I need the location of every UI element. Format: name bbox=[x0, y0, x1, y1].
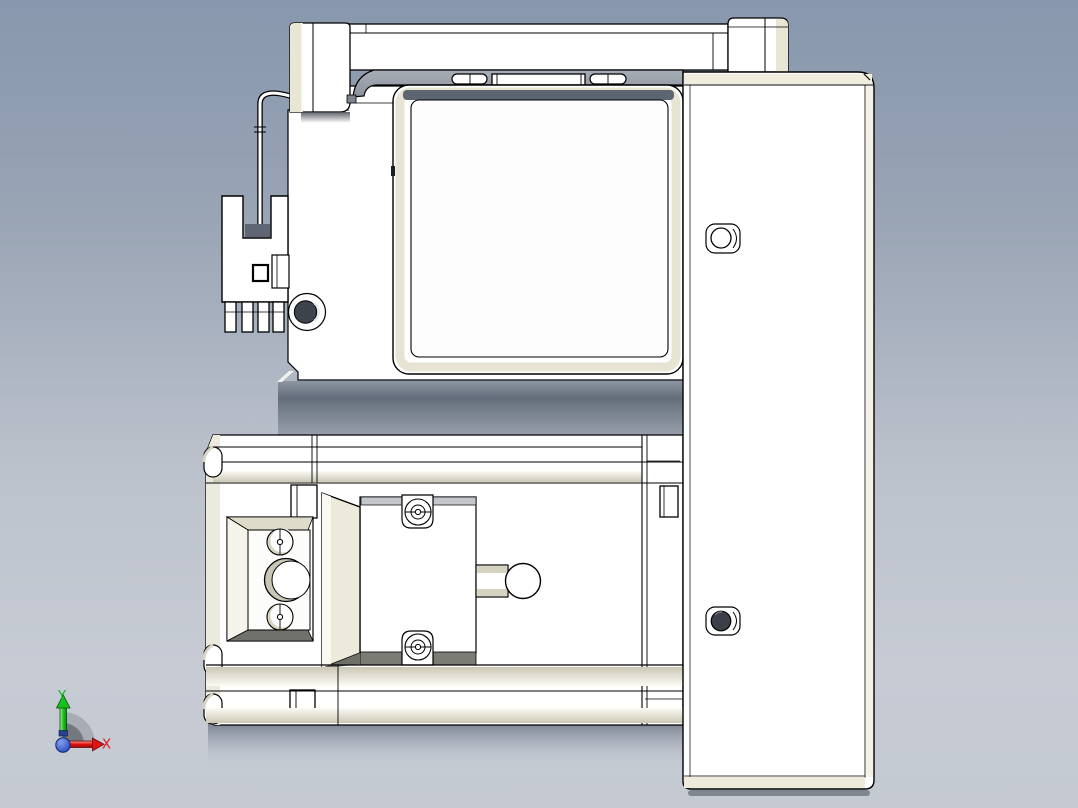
mounting-plate-face bbox=[683, 72, 874, 789]
flange-slot-center bbox=[492, 74, 585, 85]
right-mount-post bbox=[728, 18, 788, 72]
cover-panel bbox=[391, 85, 683, 374]
plate-hole-top bbox=[706, 224, 740, 253]
left-mount-post bbox=[290, 23, 350, 123]
cad-preview-window: Y X bbox=[0, 0, 1078, 808]
cover-panel-inset bbox=[411, 100, 668, 357]
flange-slot-left bbox=[452, 74, 487, 84]
motor-end-recess bbox=[227, 517, 313, 641]
model-viewport[interactable]: Y X bbox=[0, 0, 1078, 808]
motor-shaft-bore bbox=[265, 559, 311, 602]
socket-screw bbox=[289, 294, 326, 331]
carriage-screw-tab-bottom bbox=[402, 631, 433, 665]
lower-body-floor-shadow bbox=[208, 722, 683, 764]
piston-rod-end bbox=[506, 564, 541, 599]
carriage-screw-tab-top bbox=[402, 495, 433, 528]
z-axis-origin-sphere bbox=[56, 738, 70, 752]
lower-actuator-assembly bbox=[204, 435, 683, 764]
upper-body-underside-shadow bbox=[278, 381, 683, 437]
piston-rod bbox=[476, 564, 541, 599]
rail-clip-right bbox=[660, 486, 678, 517]
plate-bolt-bottom bbox=[706, 607, 740, 635]
connector-square-hole bbox=[253, 265, 268, 281]
rail-clip-top bbox=[291, 485, 317, 518]
top-rail-bar bbox=[348, 24, 728, 70]
connector-side-tab bbox=[272, 255, 289, 288]
y-axis-label: Y bbox=[57, 688, 67, 704]
mounting-plate bbox=[683, 72, 874, 796]
x-axis-label: X bbox=[102, 737, 111, 753]
